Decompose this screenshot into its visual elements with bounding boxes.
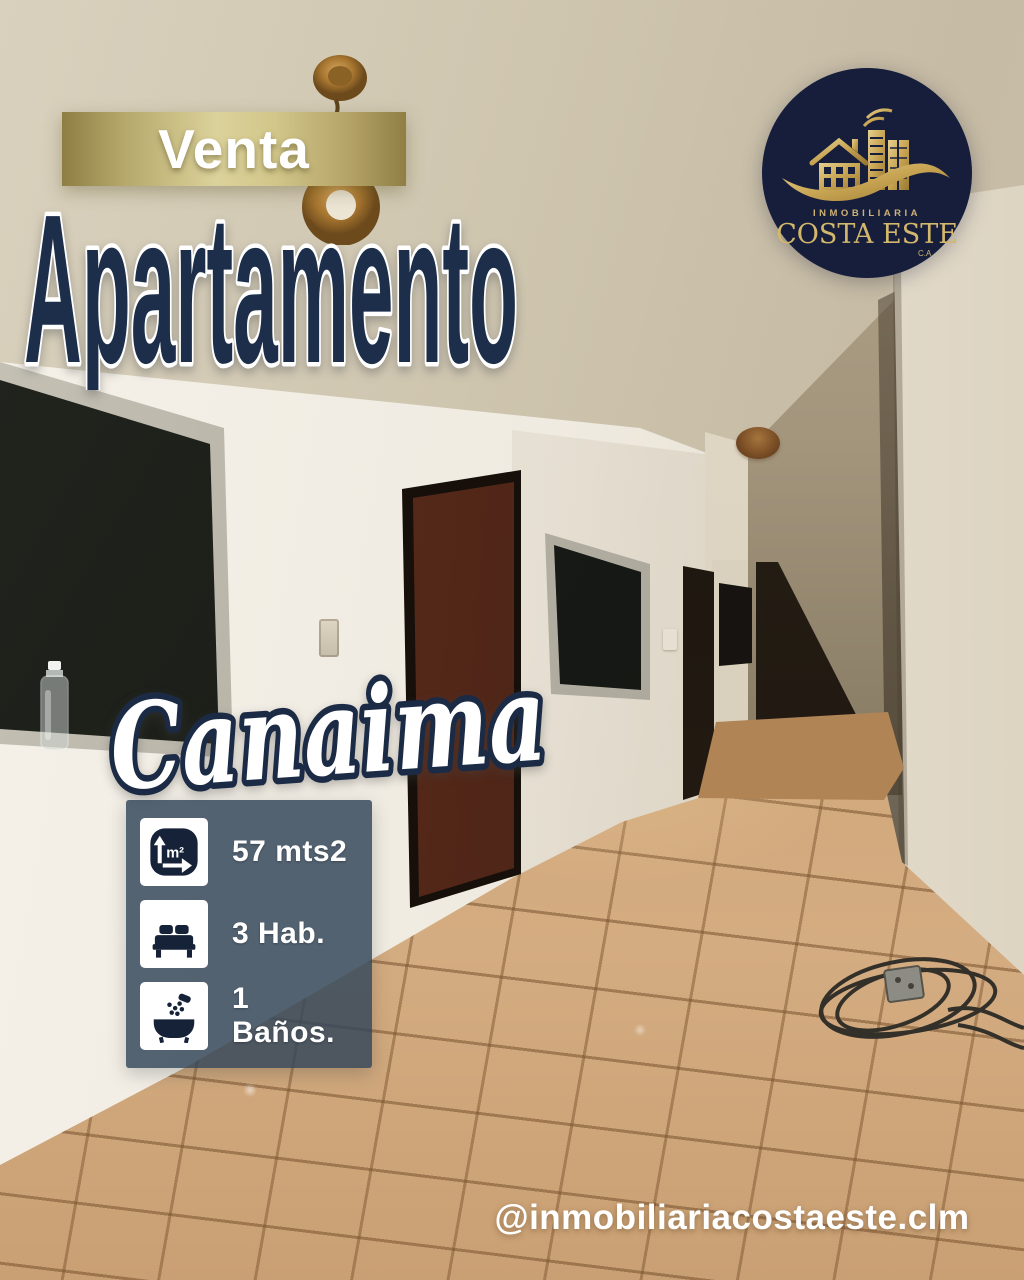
area-icon: m² [140, 818, 208, 886]
social-handle: @inmobiliariacostaeste.clm [440, 1198, 1024, 1238]
logo-line1: INMOBILIARIA [813, 208, 921, 219]
bath-icon [140, 982, 208, 1050]
features-panel: m² 57 mts2 3 Hab. [126, 800, 372, 1068]
agency-logo: INMOBILIARIA COSTA ESTE C.A [760, 66, 974, 280]
sale-banner: Venta [62, 112, 406, 186]
location-script: Canaima [92, 642, 572, 822]
listing-flyer: Venta Apartamento Canaima INMO [0, 0, 1024, 1280]
bathrooms-label: 1 Baños. [232, 982, 358, 1050]
bedrooms-label: 3 Hab. [232, 917, 325, 951]
sale-banner-label: Venta [158, 117, 310, 181]
logo-line2: COSTA ESTE [776, 219, 958, 250]
logo-line3: C.A [918, 249, 932, 258]
area-label: 57 mts2 [232, 835, 347, 869]
feature-bathrooms: 1 Baños. [140, 982, 358, 1050]
light-switch-2 [663, 629, 677, 650]
bed-icon [140, 900, 208, 968]
svg-text:m²: m² [166, 846, 184, 862]
feature-bedrooms: 3 Hab. [140, 900, 358, 968]
water-bottle [34, 660, 76, 752]
location-text: Canaima [106, 648, 551, 817]
feature-area: m² 57 mts2 [140, 818, 358, 886]
property-type-title: Apartamento [14, 190, 534, 390]
ceiling-light-icon [736, 427, 780, 459]
title-text: Apartamento [24, 190, 518, 390]
cables [798, 930, 1024, 1070]
